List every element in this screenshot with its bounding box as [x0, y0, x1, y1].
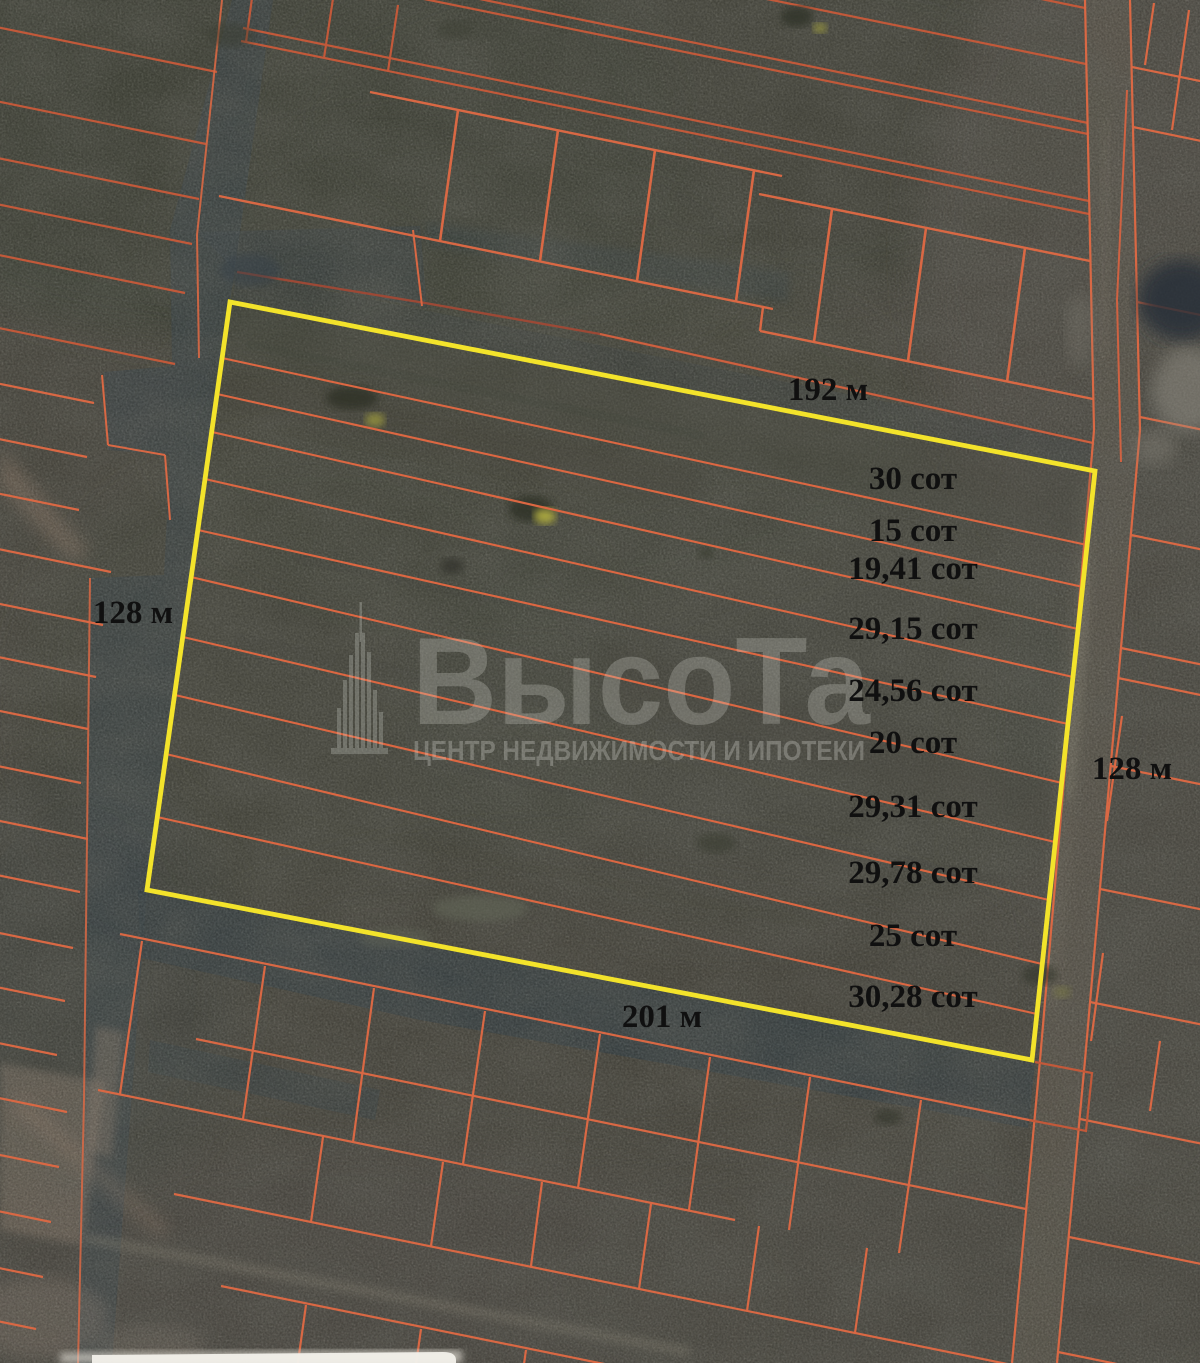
svg-text:128 м: 128 м	[93, 595, 173, 631]
svg-text:25 сот: 25 сот	[869, 918, 957, 954]
svg-text:128 м: 128 м	[1092, 751, 1172, 787]
svg-text:30 сот: 30 сот	[869, 461, 957, 497]
svg-text:ЦЕНТР НЕДВИЖИМОСТИ И ИПОТЕКИ: ЦЕНТР НЕДВИЖИМОСТИ И ИПОТЕКИ	[413, 735, 865, 766]
svg-text:192 м: 192 м	[788, 372, 868, 408]
svg-text:24,56 сот: 24,56 сот	[848, 673, 977, 709]
svg-text:29,78 сот: 29,78 сот	[848, 855, 977, 891]
svg-text:201 м: 201 м	[622, 999, 702, 1035]
svg-text:29,31 сот: 29,31 сот	[848, 789, 977, 825]
svg-text:ВысоТа: ВысоТа	[412, 613, 871, 751]
svg-text:29,15 сот: 29,15 сот	[848, 611, 977, 647]
svg-text:15 сот: 15 сот	[869, 513, 957, 549]
svg-text:19,41 сот: 19,41 сот	[848, 551, 977, 587]
svg-text:20 сот: 20 сот	[869, 725, 957, 761]
svg-text:30,28 сот: 30,28 сот	[848, 979, 977, 1015]
